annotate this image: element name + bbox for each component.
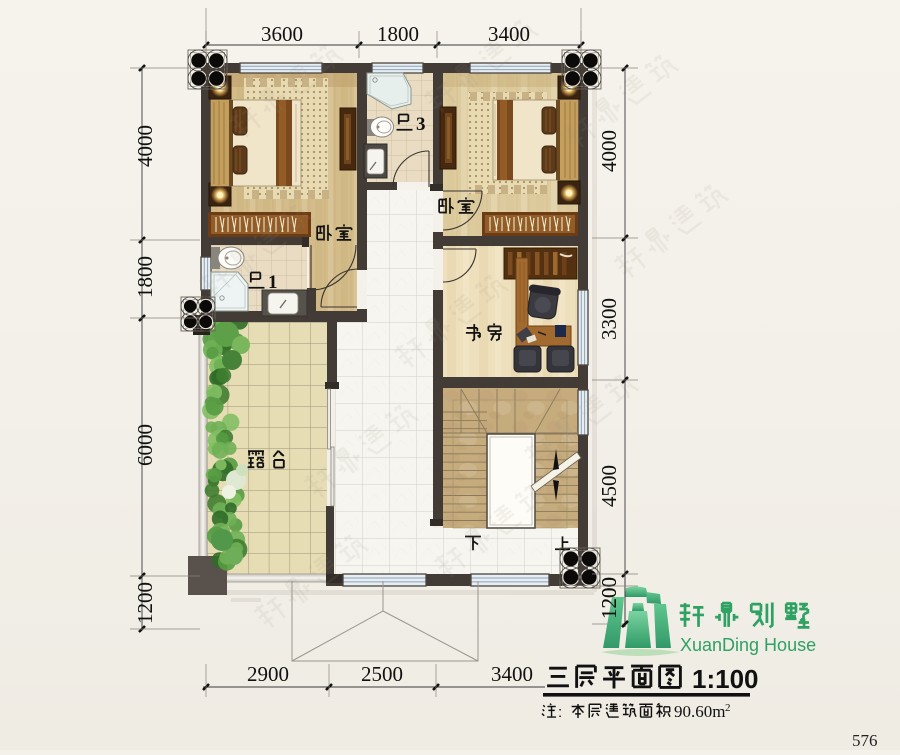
svg-text:3400: 3400: [488, 22, 530, 46]
svg-text:3400: 3400: [491, 662, 533, 686]
svg-text:576: 576: [852, 731, 878, 750]
svg-text:1200: 1200: [597, 577, 621, 619]
svg-text:1800: 1800: [133, 256, 157, 298]
svg-text:4000: 4000: [597, 130, 621, 172]
svg-text:1: 1: [268, 272, 278, 293]
svg-text:XuanDing House: XuanDing House: [680, 635, 816, 655]
svg-text:1200: 1200: [133, 582, 157, 624]
svg-text:90.60m: 90.60m: [674, 702, 725, 721]
svg-text:2500: 2500: [361, 662, 403, 686]
svg-text:6000: 6000: [133, 424, 157, 466]
svg-text:3: 3: [416, 114, 426, 135]
svg-text:4000: 4000: [133, 125, 157, 167]
svg-text:1800: 1800: [377, 22, 419, 46]
svg-text:3300: 3300: [597, 298, 621, 340]
svg-text::: :: [558, 704, 562, 721]
svg-text:2900: 2900: [247, 662, 289, 686]
svg-text:2: 2: [725, 702, 731, 714]
svg-text:3600: 3600: [261, 22, 303, 46]
svg-text:4500: 4500: [597, 465, 621, 507]
svg-text:1:100: 1:100: [692, 664, 759, 694]
